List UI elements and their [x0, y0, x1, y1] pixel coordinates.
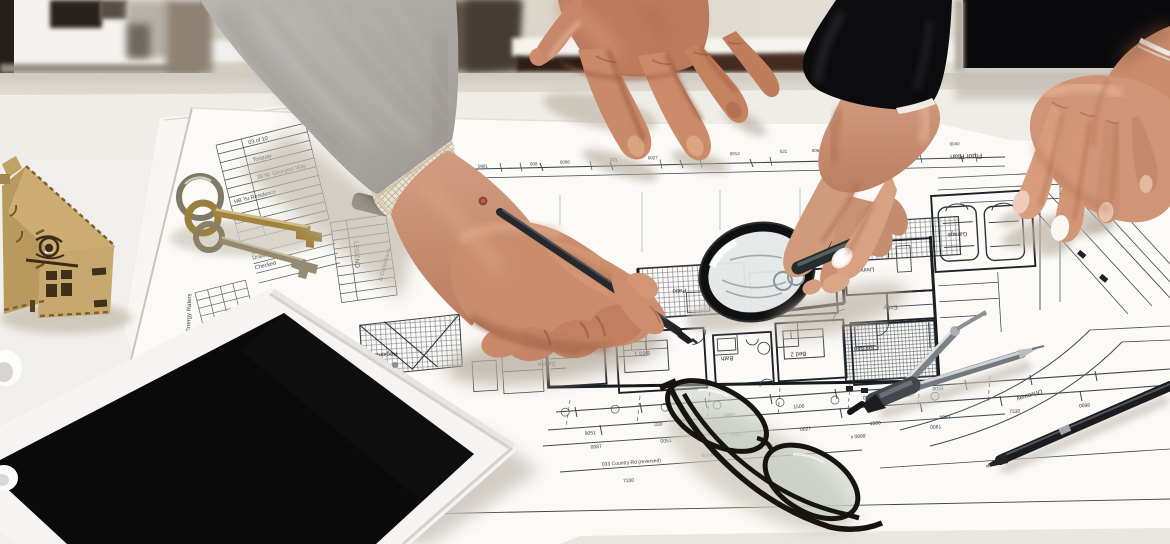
svg-text:0081: 0081 [930, 424, 942, 431]
svg-text:1500: 1500 [793, 404, 805, 411]
svg-text:008: 008 [530, 161, 538, 166]
svg-text:7330: 7330 [623, 478, 635, 485]
svg-text:Patio: Patio [672, 287, 687, 294]
svg-text:0981: 0981 [478, 164, 489, 169]
svg-text:0040: 0040 [949, 141, 960, 146]
svg-text:0027: 0027 [800, 426, 812, 433]
svg-text:031: 031 [780, 149, 788, 154]
svg-text:0066: 0066 [560, 159, 571, 164]
svg-text:0027: 0027 [648, 155, 659, 160]
svg-text:x 0899: x 0899 [850, 433, 866, 440]
svg-text:9051: 9051 [585, 430, 597, 437]
svg-text:0087: 0087 [591, 444, 603, 451]
svg-text:Kitchen: Kitchen [854, 344, 874, 351]
svg-text:0098: 0098 [1079, 403, 1091, 410]
svg-text:Bed 2: Bed 2 [790, 350, 807, 357]
svg-text:Bath: Bath [721, 354, 734, 361]
svg-text:1500: 1500 [870, 420, 882, 427]
svg-text:0912: 0912 [730, 151, 741, 156]
svg-text:Floor Plan: Floor Plan [950, 152, 982, 160]
svg-text:Garage: Garage [946, 230, 967, 237]
svg-text:030: 030 [654, 422, 663, 429]
